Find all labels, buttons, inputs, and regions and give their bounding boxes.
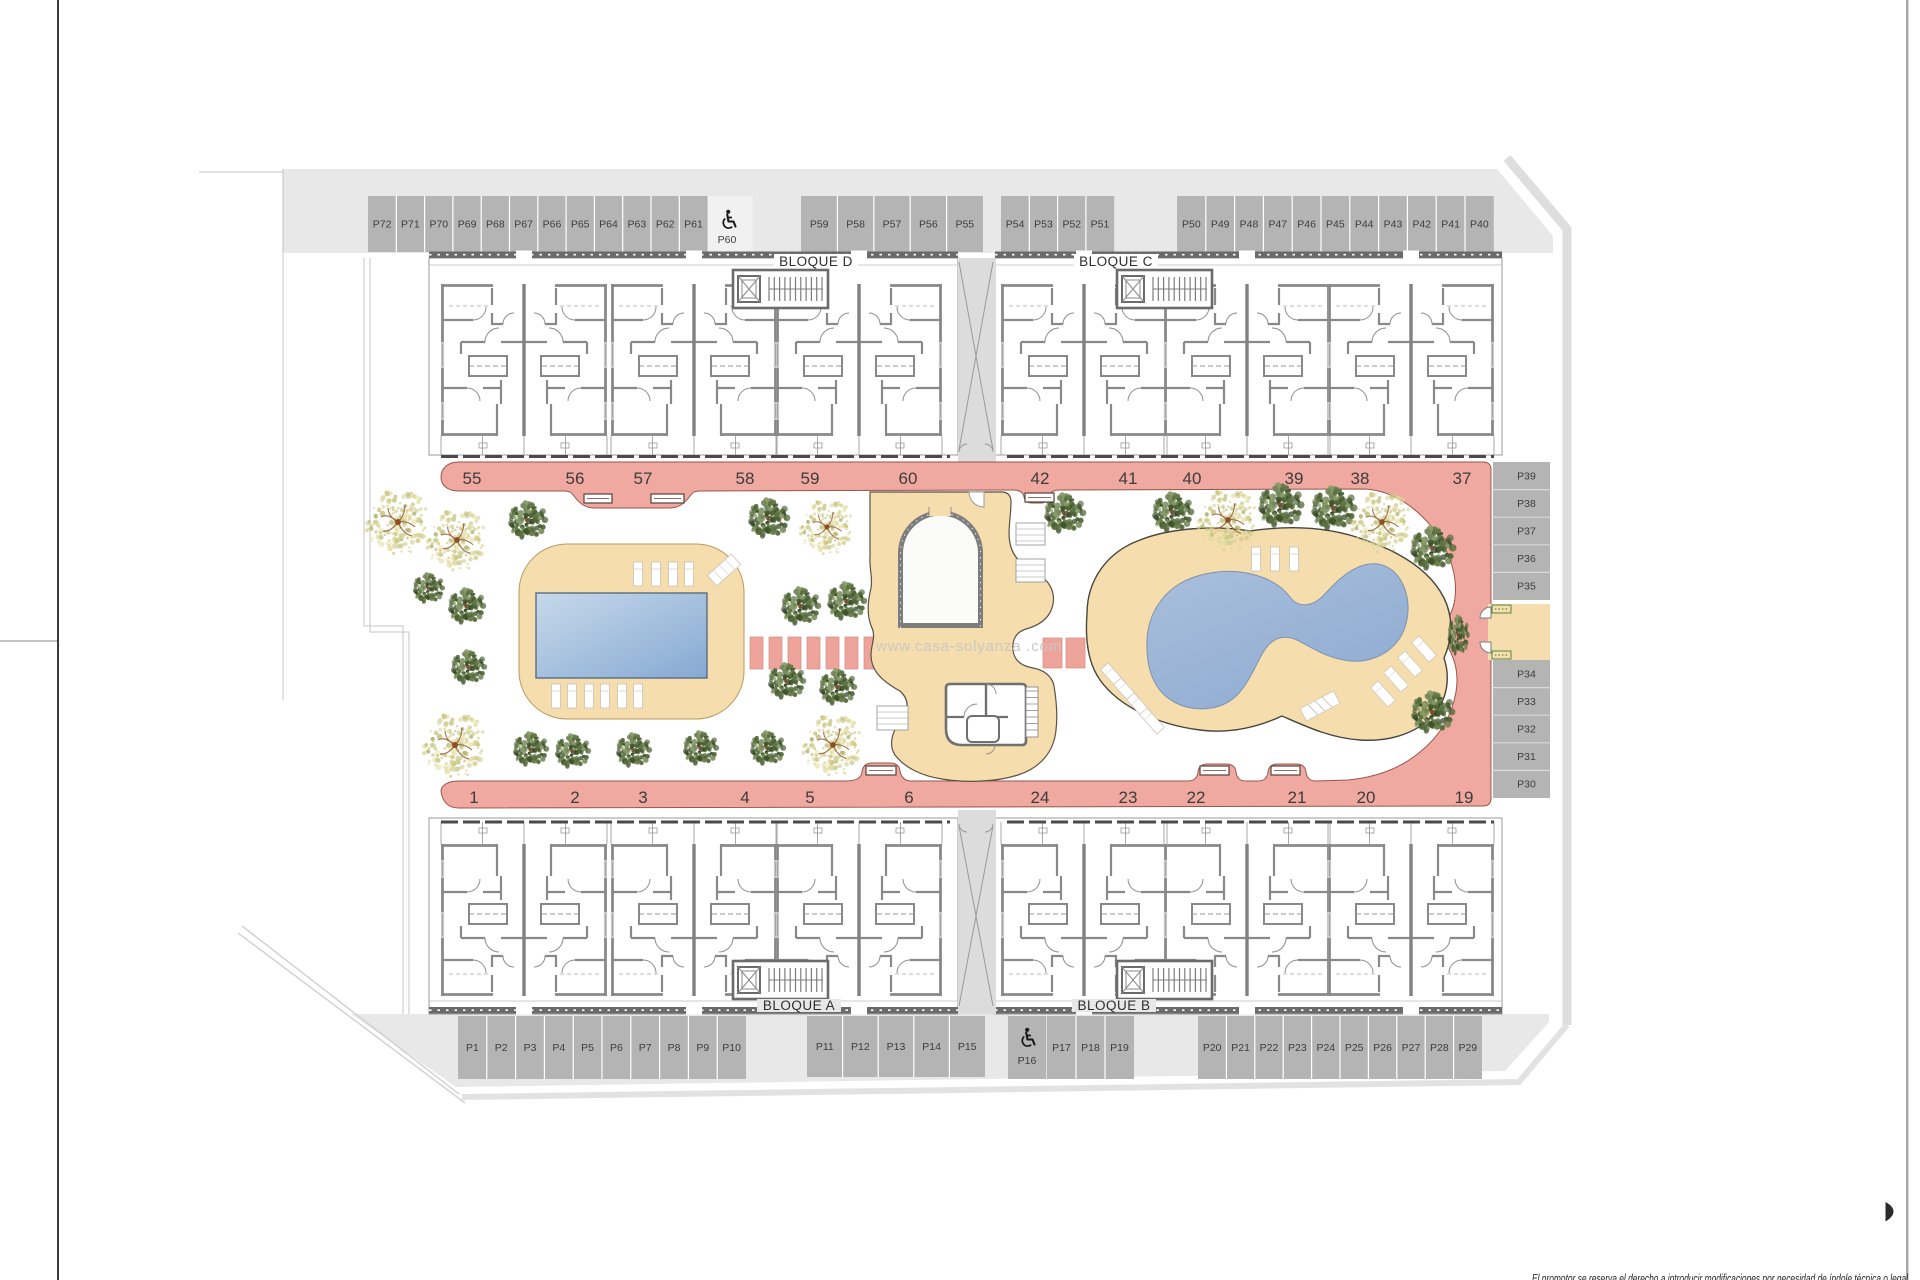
svg-text:P59: P59: [810, 219, 829, 231]
svg-text:39: 39: [1285, 469, 1304, 488]
svg-text:P20: P20: [1203, 1042, 1222, 1054]
svg-text:P58: P58: [846, 219, 865, 231]
svg-text:P54: P54: [1006, 219, 1025, 231]
svg-text:1: 1: [469, 788, 478, 807]
svg-text:41: 41: [1119, 469, 1138, 488]
svg-text:P11: P11: [816, 1041, 834, 1053]
svg-text:60: 60: [899, 469, 918, 488]
svg-text:www.casa-solyanza .com: www.casa-solyanza .com: [875, 638, 1062, 655]
svg-text:P2: P2: [495, 1042, 508, 1054]
svg-text:P31: P31: [1517, 751, 1536, 763]
svg-text:P33: P33: [1517, 696, 1536, 708]
svg-text:P62: P62: [656, 219, 675, 231]
svg-text:P34: P34: [1517, 668, 1536, 680]
svg-text:19: 19: [1455, 788, 1474, 807]
svg-text:P15: P15: [958, 1041, 977, 1053]
svg-text:P16: P16: [1018, 1055, 1037, 1067]
svg-text:P6: P6: [610, 1042, 623, 1054]
svg-text:P71: P71: [401, 219, 420, 231]
svg-text:P57: P57: [883, 219, 902, 231]
svg-text:5: 5: [805, 788, 814, 807]
svg-text:P8: P8: [668, 1042, 681, 1054]
svg-text:57: 57: [634, 469, 653, 488]
svg-text:P19: P19: [1110, 1042, 1129, 1054]
svg-text:P70: P70: [429, 219, 448, 231]
svg-text:58: 58: [736, 469, 755, 488]
svg-text:P30: P30: [1517, 779, 1536, 791]
svg-text:P37: P37: [1517, 526, 1536, 538]
svg-text:P44: P44: [1355, 219, 1374, 231]
svg-text:P46: P46: [1297, 219, 1316, 231]
svg-text:P47: P47: [1268, 219, 1287, 231]
svg-text:22: 22: [1187, 788, 1206, 807]
svg-text:P26: P26: [1373, 1042, 1392, 1054]
svg-text:P25: P25: [1345, 1042, 1364, 1054]
svg-text:P28: P28: [1430, 1042, 1449, 1054]
svg-text:56: 56: [566, 469, 585, 488]
svg-text:P17: P17: [1052, 1042, 1071, 1054]
svg-text:P60: P60: [718, 234, 737, 246]
svg-text:P1: P1: [466, 1042, 479, 1054]
svg-text:P18: P18: [1081, 1042, 1100, 1054]
svg-text:P42: P42: [1412, 219, 1431, 231]
svg-text:55: 55: [463, 469, 482, 488]
svg-text:P43: P43: [1384, 219, 1403, 231]
svg-text:P12: P12: [851, 1041, 870, 1053]
svg-text:6: 6: [904, 788, 913, 807]
svg-text:2: 2: [570, 788, 579, 807]
svg-text:P66: P66: [543, 219, 562, 231]
svg-text:El promotor se reserva el dere: El promotor se reserva el derecho a intr…: [1532, 1274, 1908, 1280]
svg-text:P55: P55: [955, 219, 974, 231]
svg-text:P38: P38: [1517, 498, 1536, 510]
svg-text:P36: P36: [1517, 553, 1536, 565]
svg-text:P68: P68: [486, 219, 505, 231]
svg-text:P39: P39: [1517, 470, 1536, 482]
svg-text:P65: P65: [571, 219, 590, 231]
svg-text:P67: P67: [514, 219, 533, 231]
svg-text:P27: P27: [1402, 1042, 1421, 1054]
svg-text:P63: P63: [628, 219, 647, 231]
svg-text:P56: P56: [919, 219, 938, 231]
svg-text:P72: P72: [373, 219, 392, 231]
svg-text:4: 4: [740, 788, 749, 807]
svg-text:P53: P53: [1034, 219, 1053, 231]
svg-text:P61: P61: [684, 219, 703, 231]
svg-text:P64: P64: [599, 219, 618, 231]
svg-text:P9: P9: [696, 1042, 709, 1054]
svg-text:21: 21: [1288, 788, 1307, 807]
svg-text:P21: P21: [1231, 1042, 1250, 1054]
svg-text:40: 40: [1183, 469, 1202, 488]
svg-text:P3: P3: [524, 1042, 537, 1054]
svg-text:P24: P24: [1316, 1042, 1335, 1054]
svg-text:P4: P4: [552, 1042, 565, 1054]
svg-text:BLOQUE B: BLOQUE B: [1077, 998, 1150, 1013]
svg-text:P41: P41: [1441, 219, 1460, 231]
svg-text:P13: P13: [887, 1041, 906, 1053]
svg-text:BLOQUE A: BLOQUE A: [763, 998, 835, 1013]
svg-text:P10: P10: [722, 1042, 741, 1054]
svg-text:24: 24: [1031, 788, 1050, 807]
svg-text:P69: P69: [458, 219, 477, 231]
svg-text:P22: P22: [1260, 1042, 1279, 1054]
svg-text:P23: P23: [1288, 1042, 1307, 1054]
svg-text:P32: P32: [1517, 724, 1536, 736]
svg-text:P45: P45: [1326, 219, 1345, 231]
svg-text:P14: P14: [922, 1041, 941, 1053]
svg-text:P51: P51: [1091, 219, 1110, 231]
svg-text:P50: P50: [1182, 219, 1201, 231]
svg-text:P49: P49: [1211, 219, 1230, 231]
svg-text:20: 20: [1357, 788, 1376, 807]
svg-text:P5: P5: [581, 1042, 594, 1054]
svg-text:BLOQUE D: BLOQUE D: [779, 254, 853, 269]
svg-text:BLOQUE C: BLOQUE C: [1079, 254, 1153, 269]
svg-text:23: 23: [1119, 788, 1138, 807]
svg-text:P29: P29: [1458, 1042, 1477, 1054]
svg-text:P48: P48: [1240, 219, 1259, 231]
svg-text:3: 3: [638, 788, 647, 807]
svg-text:P40: P40: [1470, 219, 1489, 231]
svg-text:38: 38: [1351, 469, 1370, 488]
svg-text:59: 59: [801, 469, 820, 488]
svg-text:P7: P7: [639, 1042, 652, 1054]
svg-text:P35: P35: [1517, 581, 1536, 593]
svg-text:37: 37: [1453, 469, 1472, 488]
svg-text:P52: P52: [1062, 219, 1081, 231]
svg-text:42: 42: [1031, 469, 1050, 488]
